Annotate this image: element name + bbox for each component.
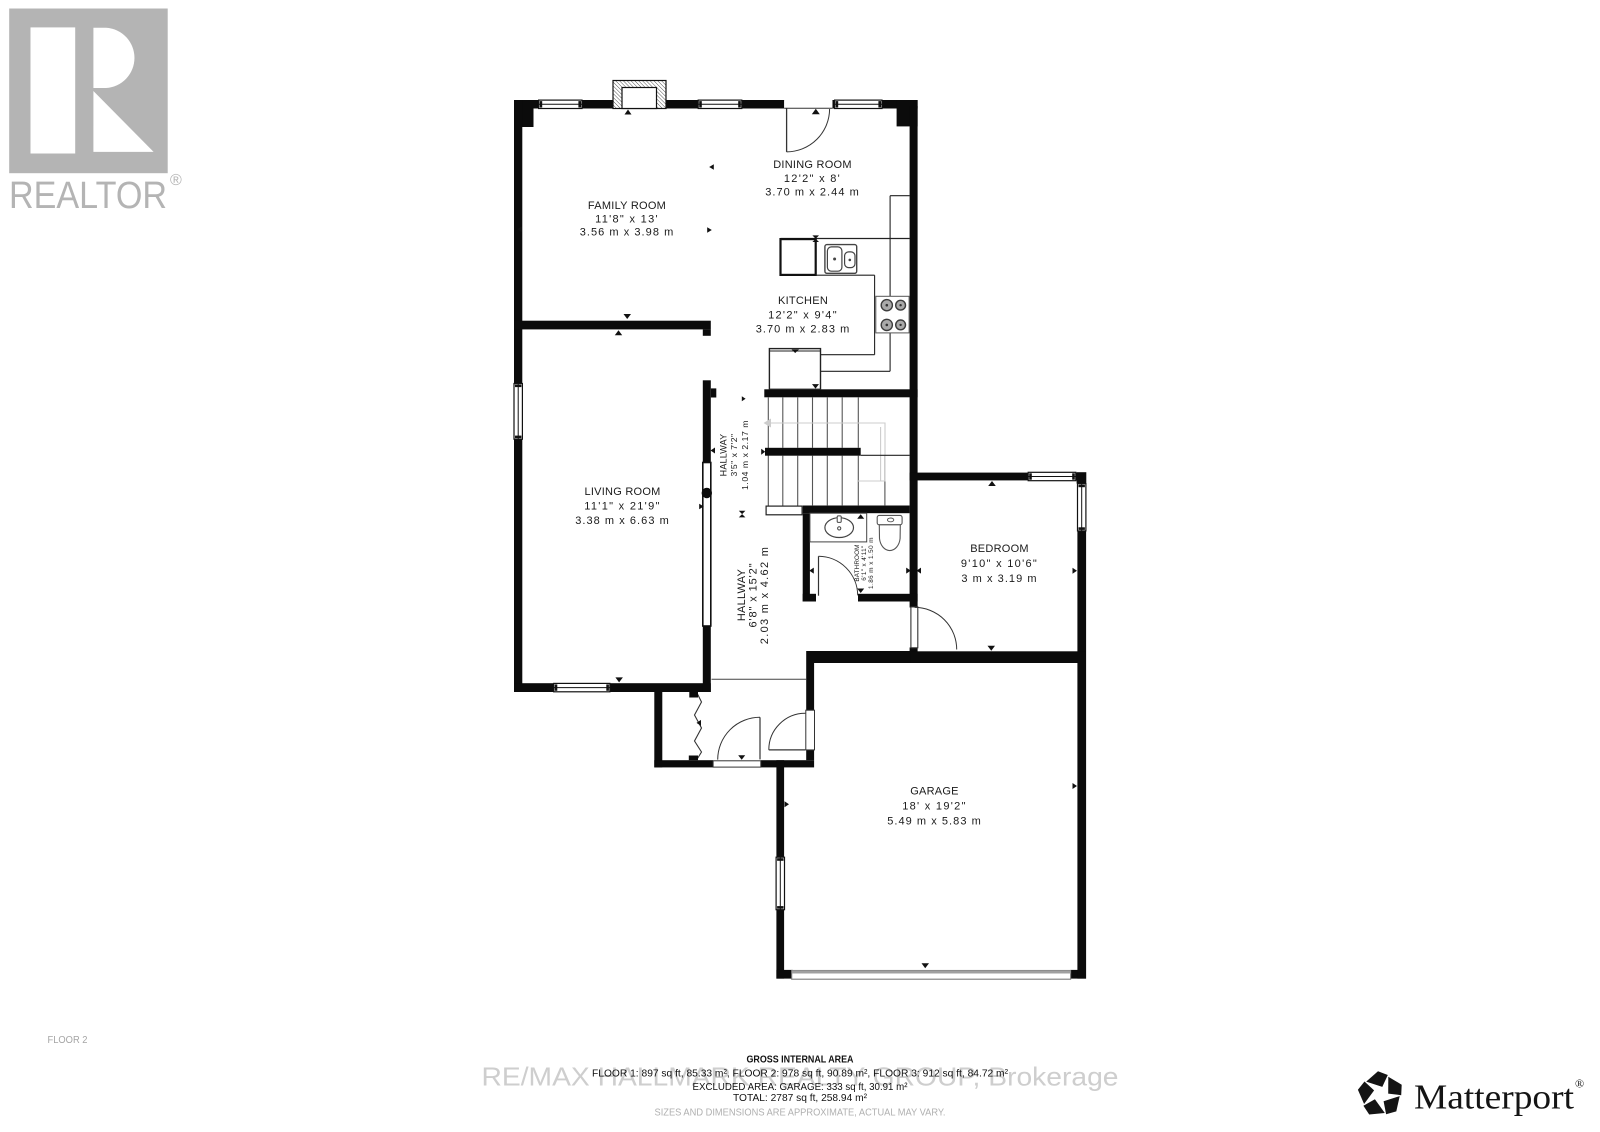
svg-text:HALLWAY: HALLWAY xyxy=(719,434,729,477)
svg-text:12'2" x 8': 12'2" x 8' xyxy=(784,173,841,185)
svg-text:FAMILY ROOM: FAMILY ROOM xyxy=(588,200,666,212)
svg-text:LIVING ROOM: LIVING ROOM xyxy=(584,486,660,498)
svg-text:1.86 m x 1.50 m: 1.86 m x 1.50 m xyxy=(868,537,875,589)
svg-text:TOTAL: 2787 sq ft, 258.94 m²: TOTAL: 2787 sq ft, 258.94 m² xyxy=(733,1092,867,1104)
svg-text:2.03 m x 4.62 m: 2.03 m x 4.62 m xyxy=(759,546,771,644)
svg-text:12'2" x 9'4": 12'2" x 9'4" xyxy=(768,310,838,322)
svg-text:®: ® xyxy=(1575,1077,1584,1091)
svg-text:GROSS INTERNAL AREA: GROSS INTERNAL AREA xyxy=(747,1054,854,1066)
svg-text:BATHROOM: BATHROOM xyxy=(854,544,861,581)
svg-text:5.49 m x 5.83 m: 5.49 m x 5.83 m xyxy=(887,816,982,828)
svg-text:6'1" x 4'11": 6'1" x 4'11" xyxy=(861,545,868,580)
svg-text:®: ® xyxy=(170,172,182,189)
svg-text:KITCHEN: KITCHEN xyxy=(778,295,828,307)
svg-text:FLOOR 2: FLOOR 2 xyxy=(48,1035,88,1046)
svg-text:GARAGE: GARAGE xyxy=(910,786,959,798)
svg-text:3 m x 3.19 m: 3 m x 3.19 m xyxy=(961,573,1037,585)
svg-text:REALTOR: REALTOR xyxy=(9,175,167,217)
svg-text:BEDROOM: BEDROOM xyxy=(970,543,1029,555)
svg-text:9'10" x 10'6": 9'10" x 10'6" xyxy=(961,558,1038,570)
svg-text:11'8" x 13': 11'8" x 13' xyxy=(595,214,659,226)
svg-text:3'5" x 7'2": 3'5" x 7'2" xyxy=(729,433,739,476)
svg-text:1.04 m x 2.17 m: 1.04 m x 2.17 m xyxy=(740,420,750,490)
svg-text:DINING ROOM: DINING ROOM xyxy=(773,159,852,171)
svg-text:11'1" x 21'9": 11'1" x 21'9" xyxy=(584,501,660,513)
svg-text:HALLWAY: HALLWAY xyxy=(736,568,748,621)
svg-text:3.56 m x 3.98 m: 3.56 m x 3.98 m xyxy=(580,227,675,239)
svg-text:SIZES AND DIMENSIONS ARE APPRO: SIZES AND DIMENSIONS ARE APPROXIMATE, AC… xyxy=(655,1107,946,1119)
svg-text:3.38 m x 6.63 m: 3.38 m x 6.63 m xyxy=(575,515,670,527)
svg-text:6'8" x 15'2": 6'8" x 15'2" xyxy=(748,562,760,627)
svg-text:18' x 19'2": 18' x 19'2" xyxy=(902,801,967,813)
svg-text:3.70 m x 2.83 m: 3.70 m x 2.83 m xyxy=(756,324,851,336)
svg-text:3.70 m x 2.44 m: 3.70 m x 2.44 m xyxy=(765,186,860,198)
svg-text:Matterport: Matterport xyxy=(1414,1078,1574,1117)
svg-text:FLOOR 1: 897 sq ft, 85.33 m²,: FLOOR 1: 897 sq ft, 85.33 m², FLOOR 2: 9… xyxy=(592,1068,1008,1080)
